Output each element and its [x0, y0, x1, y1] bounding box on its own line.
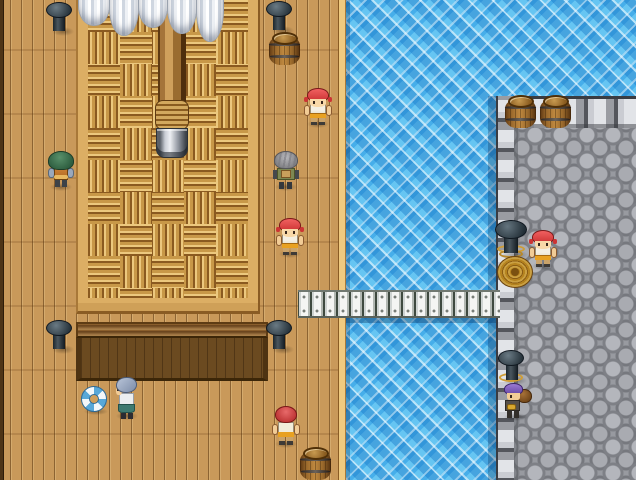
belt — [54, 175, 68, 179]
pier-bollard-with-rope — [494, 220, 528, 260]
leg — [128, 413, 133, 419]
bandana-knot — [529, 239, 533, 244]
barrel-deck-bottom — [299, 447, 332, 480]
bandana-knot — [300, 227, 304, 232]
rope-coil-center — [511, 268, 519, 276]
sailor-upper-deck[interactable] — [302, 86, 334, 128]
barrel-pier-right — [539, 95, 573, 129]
leg — [544, 260, 550, 267]
leg — [319, 118, 325, 125]
bollard-cap — [498, 350, 524, 366]
bollard-deck-bottom-center — [265, 320, 293, 354]
barrel-deck-top — [268, 32, 301, 65]
blue-hair — [116, 377, 137, 393]
sailor-mid-deck[interactable] — [274, 216, 306, 258]
furled-sail-1 — [78, 0, 110, 26]
gray-haired-villager[interactable] — [271, 151, 301, 191]
leg — [283, 248, 289, 255]
game-viewport[interactable] — [0, 0, 636, 480]
green-hair-back — [48, 151, 74, 170]
barrel-lid — [508, 95, 534, 108]
eye — [546, 243, 548, 246]
bollard-cap — [46, 2, 72, 18]
furled-sail-3 — [138, 0, 168, 28]
leg — [287, 437, 293, 445]
barrel-lid — [272, 32, 298, 45]
barrel-pier-left — [504, 95, 538, 129]
eye — [285, 231, 287, 234]
skirt — [118, 404, 135, 413]
eye — [538, 243, 540, 246]
bollard-deck-top-center — [265, 1, 293, 35]
arm — [326, 105, 332, 116]
red-hair-back — [275, 406, 297, 423]
life-ring — [81, 384, 109, 415]
barrel-band — [270, 55, 299, 58]
green-haired-villager[interactable] — [45, 151, 77, 191]
sailor-pier[interactable] — [527, 228, 559, 270]
bandana-knot — [553, 239, 557, 244]
shadow — [50, 183, 72, 191]
leg — [279, 437, 285, 445]
bollard-deck-bottom-left — [45, 320, 73, 354]
gray-hair-back — [274, 151, 298, 169]
leg — [62, 180, 67, 187]
blue-haired-attendant[interactable] — [112, 376, 142, 420]
back-pouch — [281, 170, 291, 178]
eye — [293, 231, 295, 234]
gold-bundle — [507, 404, 516, 410]
bollard-deck-top-left — [45, 2, 73, 36]
furled-sail-4 — [167, 0, 197, 34]
furled-sail-5 — [196, 0, 224, 42]
arm — [551, 247, 557, 258]
leg — [121, 413, 126, 419]
arm — [294, 424, 300, 435]
barrel-lid — [543, 95, 569, 108]
leg — [287, 182, 292, 189]
leg — [55, 180, 60, 187]
bandana-knot — [328, 97, 332, 102]
entity-layer — [0, 0, 636, 480]
leg — [514, 411, 519, 418]
bollard-cap — [495, 220, 527, 239]
sailor-lower-deck[interactable] — [271, 404, 301, 448]
porter-with-sack[interactable] — [501, 379, 533, 421]
barrel-band — [506, 118, 535, 121]
leg — [507, 411, 512, 418]
shoulder-pad — [67, 168, 74, 178]
barrel-lid — [303, 447, 329, 460]
bollard-cap — [266, 1, 292, 17]
life-ring-hole — [89, 394, 99, 404]
eye — [313, 101, 315, 104]
bollard-cap — [46, 320, 72, 336]
barrel-band — [301, 470, 330, 473]
leg — [279, 182, 284, 189]
eye — [510, 395, 512, 398]
leg — [536, 260, 542, 267]
barrel-band — [541, 118, 570, 121]
bollard-cap — [266, 320, 292, 336]
furled-sail-2 — [109, 0, 139, 36]
leg — [291, 248, 297, 255]
arm — [298, 235, 304, 246]
bandana-knot — [276, 227, 280, 232]
bandana-knot — [304, 97, 308, 102]
leg — [311, 118, 317, 125]
eye — [321, 101, 323, 104]
shadow — [116, 412, 138, 420]
